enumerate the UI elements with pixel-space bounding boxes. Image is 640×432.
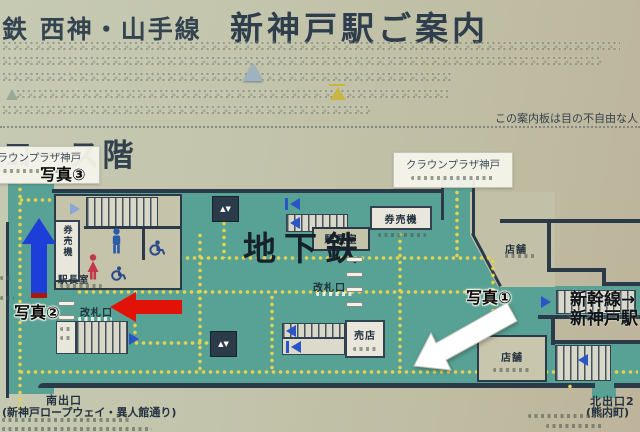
escalator-up-icon <box>129 333 139 345</box>
mens-toilet-icon <box>110 228 123 254</box>
braille-tag <box>546 424 604 428</box>
stairs-landing <box>56 321 76 354</box>
braille-row <box>2 105 370 114</box>
wall <box>614 383 640 388</box>
braille-tag <box>2 427 152 431</box>
ticket-gate-bar <box>346 257 363 262</box>
escalator-down-icon <box>286 325 296 337</box>
escalator-direction-icon <box>285 198 300 210</box>
wall <box>551 340 640 344</box>
ticket-machines-top-booth: 券売機 <box>370 206 432 230</box>
shinkansen-direction-line2: 新神戸駅 <box>570 304 638 329</box>
wall <box>500 219 640 223</box>
braille-row <box>16 89 448 98</box>
photo1-label: 写真① <box>466 284 512 308</box>
elevator-icon: ▲▼ <box>212 196 239 222</box>
wall <box>547 221 551 271</box>
tactile-path <box>18 198 54 202</box>
elevator-icon: ▲▼ <box>210 331 237 357</box>
tactile-triangle-icon <box>6 89 18 100</box>
escalator-right-icon <box>541 296 551 308</box>
braille-tag <box>60 284 102 288</box>
stairs-icon <box>76 321 128 354</box>
braille-tag <box>0 276 12 280</box>
wall-south <box>38 383 555 388</box>
divider-dotted-line <box>0 126 640 128</box>
escalator-direction-icon <box>286 341 301 353</box>
tactile-path <box>270 294 274 372</box>
ticket-gate-bar <box>58 315 75 320</box>
wheelchair-icon <box>148 240 165 256</box>
wall <box>84 226 180 229</box>
braille-row <box>2 72 454 81</box>
braille-tag <box>505 254 535 258</box>
braille-row <box>2 41 620 50</box>
ticket-gate-bar <box>58 301 75 306</box>
braille-tag <box>2 418 130 422</box>
ticket-gate-bar <box>346 287 363 292</box>
photo2-label: 写真② <box>14 299 60 323</box>
kiosk-room: 売店 <box>345 320 385 358</box>
wheelchair-icon <box>110 266 126 281</box>
wall <box>6 222 9 398</box>
stairs-icon <box>86 197 158 227</box>
ticket-gate-bar <box>346 272 363 277</box>
tactile-path <box>133 341 213 345</box>
braille-tag <box>316 292 352 296</box>
photo3-label: 写真③ <box>40 161 86 185</box>
wall <box>547 268 605 272</box>
tactile-path <box>455 182 459 258</box>
ticket-gate-bar <box>346 302 363 307</box>
wall <box>52 189 441 193</box>
tactile-triangle-icon <box>243 63 263 81</box>
escalator-down-icon <box>578 354 588 366</box>
accessibility-note: この案内板は目の不自由な人 <box>495 110 638 126</box>
hotel-right-text: クラウンプラザ神戸 <box>394 157 512 172</box>
braille-tag <box>378 233 426 237</box>
ticket-machines-top-label: 券売機 <box>372 211 430 226</box>
tactile-triangle-icon <box>330 87 346 100</box>
tactile-line <box>329 84 345 86</box>
braille-row <box>2 56 602 65</box>
tactile-path <box>198 232 202 372</box>
escalator-up-icon <box>70 203 80 215</box>
braille-tag <box>528 414 608 418</box>
blue-up-arrow <box>22 218 56 298</box>
hotel-label-right: クラウンプラザ神戸 <box>393 152 513 188</box>
wall <box>142 226 145 260</box>
ticket-machines-left-label: 券売機 <box>61 225 74 258</box>
station-guide-sign: 鉄 西神・山手線 新神戸駅ご案内 この案内板は目の不自由な人 コース階 <box>0 0 640 432</box>
kiosk-label: 売店 <box>347 327 383 342</box>
red-left-arrow <box>110 292 184 322</box>
wall <box>551 383 595 388</box>
subway-area-label: 地下鉄 <box>243 222 366 270</box>
braille-tag <box>0 296 14 300</box>
white-photo1-arrow <box>405 298 519 382</box>
tactile-path <box>222 220 226 258</box>
